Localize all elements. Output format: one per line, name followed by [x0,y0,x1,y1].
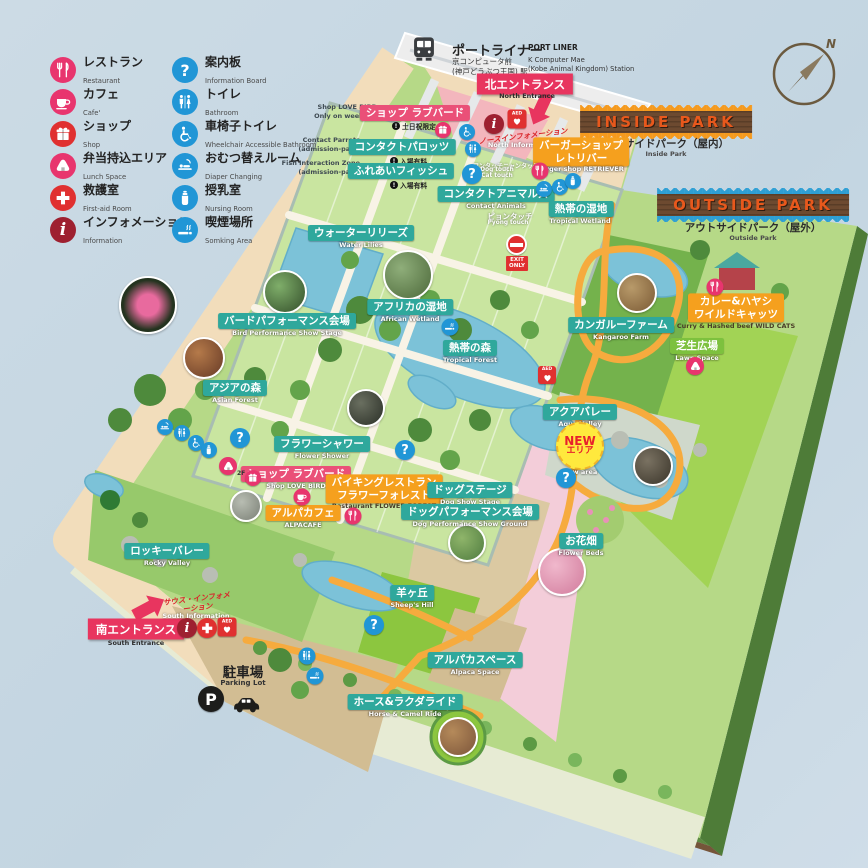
weekend-only-note: !土日祝限定 [392,121,436,131]
area-african-wetland: アフリカの湿地 [367,299,453,315]
photo-bird-performance [263,270,307,314]
parking-p-icon: P [198,686,224,712]
legend-item-nursing-room: 授乳室Nursing Room [172,183,253,213]
information-icon: i [484,114,504,134]
legend-item-smoking-area: 喫煙場所Somking Area [172,215,253,245]
photo-sea-lion [633,446,673,486]
information-icon: i [177,618,197,638]
question-icon: ? [364,615,384,635]
shop-icon [245,470,261,486]
lunch-icon [50,153,76,179]
outside-park-en: Outside Park [729,234,776,242]
port-liner-title-en: PORT LINER [528,43,578,52]
toilet-icon [172,89,198,115]
toilet-icon [299,648,316,665]
diaper-icon [536,181,552,197]
legend-item-restaurant: レストランRestaurant [50,55,143,85]
south-entrance-en: South Entrance [108,639,164,647]
area-aqua-valley: アクアバレー [543,404,617,420]
shop-icon [435,122,451,138]
legend-item-wheelchair-bathroom: 車椅子トイレWheelchair Accessible Bathroom [172,119,316,149]
area-flower-beds: お花畑 [559,533,603,549]
area-contact-parrots: コンタクトパロッツ [349,139,456,155]
photo-red-panda [183,337,225,379]
area-flower-shower: フラワーシャワー [274,436,370,452]
restaurant-icon [345,508,362,525]
south-entrance-banner: 南エントランス [88,619,184,640]
outside-park-jp: アウトサイドパーク（屋外） [685,220,822,235]
area-fish-interaction: ふれあいフィッシュ [348,163,454,179]
area-dog-performance: ドッグパフォーマンス会場 [401,504,539,520]
area-shop-love-bird-north: ショップ ラブバード [360,105,470,121]
smoking-icon [442,319,459,336]
shop-icon [50,121,76,147]
area-alpaca-space: アルパカスペース [428,652,523,668]
area-lawn-space: 芝生広場 [670,338,724,354]
area-dog-stage: ドッグステージ [427,482,512,498]
legend-item-information: i インフォメーションInformation [50,215,190,245]
question-icon: ? [172,57,198,83]
parking-label-en: Parking Lot [220,679,265,687]
parking-label: 駐車場 [223,661,264,681]
admission-paid-note-2: !入場有料 [390,180,427,190]
nursing-icon [565,173,581,189]
north-entrance-en: North Entrance [499,92,555,100]
toilet-icon [174,425,190,441]
question-icon: ? [462,164,482,184]
area-kangaroo-farm: カンガルーファーム [568,317,674,333]
area-horse-camel-ride: ホース&ラクダライド [348,694,463,710]
station-name-en-1: K Computer Mae [528,56,585,65]
nursing-icon [201,442,217,458]
kobe-animal-kingdom-map: N レストランRestaurant カフェCafe' ショップShop 弁当持込… [0,0,868,868]
restaurant-icon [532,163,549,180]
compass: N [760,28,850,118]
diaper-icon [172,153,198,179]
photo-asian-forest-animal [347,389,385,427]
photo-wolf [230,490,262,522]
area-tropical-wetland: 熱帯の湿地 [549,201,614,217]
lunch-icon [686,357,704,375]
legend-item-bathroom: トイレBathroom [172,87,241,117]
aed-icon: AED [508,110,527,129]
legend-item-lunch-space: 弁当持込エリアLunch Space [50,151,167,181]
area-curry-wild-cats: カレー&ハヤシワイルドキャッツ [688,293,784,322]
legend-item-shop: ショップShop [50,119,131,149]
second-floor-note: 2F [237,470,245,477]
area-tropical-forest: 熱帯の森 [443,340,497,356]
restaurant-icon [707,279,724,296]
aed-icon: AED [538,366,556,384]
exit-only-sign: EXITONLY [506,234,528,271]
area-alpacafe: アルパカフェ [266,505,341,521]
train-icon [410,35,438,63]
car-icon [231,687,261,717]
first-aid-icon [50,185,76,211]
inside-park-banner: INSIDE PARK [580,111,752,133]
wheelchair-icon [172,121,198,147]
compass-n-label: N [826,37,836,51]
legend-item-first-aid: 救護室First-aid Room [50,183,132,213]
restaurant-icon [50,57,76,83]
legend-label: レストラン [83,55,143,69]
new-area-badge: NEW エリア [556,422,604,470]
information-icon: i [50,217,76,243]
outside-park-banner: OUTSIDE PARK [657,194,849,216]
area-burger-shop: バーガーショップレトリバー [533,137,629,166]
lunch-icon [219,457,237,475]
question-icon: ? [230,428,250,448]
inside-park-en: Inside Park [646,150,687,158]
photo-shoebill [383,250,433,300]
photo-kangaroo [617,273,657,313]
station-name-jp-1: 京コンピュータ前 [452,57,512,67]
cafe-icon [50,89,76,115]
photo-water-lily [119,276,177,334]
cafe-icon [294,489,311,506]
legend-item-cafe: カフェCafe' [50,87,119,117]
area-sheeps-hill: 羊ヶ丘 [390,585,434,601]
toilet-icon [465,141,481,157]
photo-dog-show [448,524,486,562]
wheelchair-icon [459,124,475,140]
smoking-icon [307,668,324,685]
smoking-icon [172,217,198,243]
area-bird-performance: バードパフォーマンス会場 [218,313,356,329]
aed-icon: AED [218,618,237,637]
photo-camel [438,717,478,757]
area-rocky-valley: ロッキーバレー [124,543,209,559]
nursing-icon [172,185,198,211]
area-asian-forest: アジアの森 [203,380,267,396]
area-water-lilies: ウォーターリリーズ [308,225,414,241]
question-icon: ? [556,468,576,488]
diaper-icon [157,419,173,435]
area-restaurant-flower-forest: バイキングレストランフラワーフォレスト [326,474,443,503]
no-entry-icon [506,234,527,255]
question-icon: ? [395,440,415,460]
first-aid-icon [197,618,217,638]
legend-item-information-board: ? 案内板Information Board [172,55,266,85]
